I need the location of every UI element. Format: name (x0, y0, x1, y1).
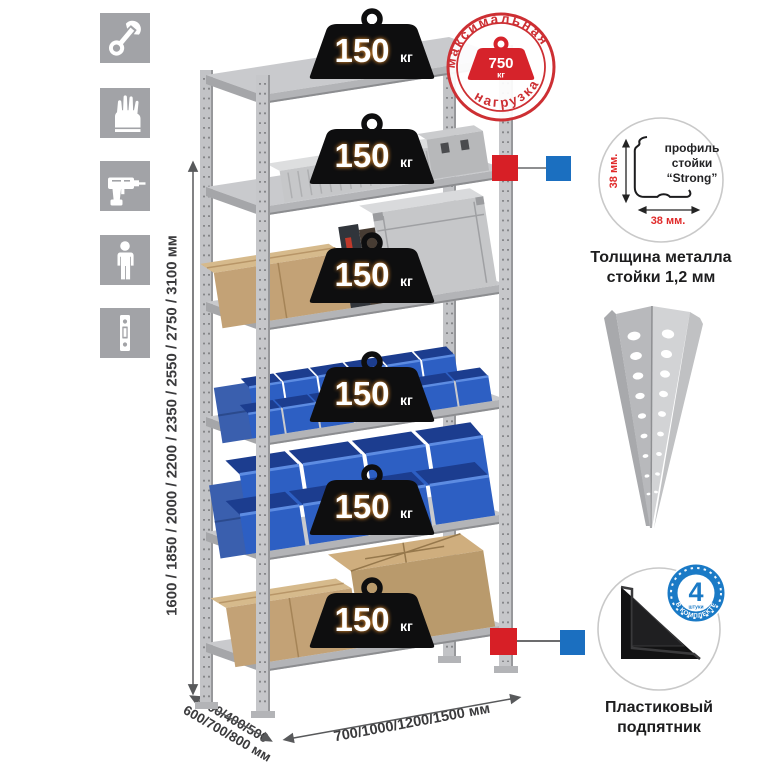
svg-text:кг: кг (400, 618, 413, 634)
svg-text:38 мм.: 38 мм. (651, 215, 686, 227)
svg-text:38 мм.: 38 мм. (608, 154, 620, 189)
blue-marker (560, 630, 585, 655)
svg-text:профиль: профиль (665, 141, 720, 155)
shelving-product-infographic: 1600 / 1850 / 2000 / 2200 / 2350 / 2550 … (0, 0, 765, 765)
plastic-foot-detail: 4 штуки В КОМПЛЕКТЕ (598, 563, 726, 690)
red-marker (492, 155, 518, 181)
weight-badge-2: 150 кг (310, 116, 434, 184)
svg-text:кг: кг (400, 154, 413, 170)
svg-text:150: 150 (334, 32, 389, 69)
angle-post-image (604, 306, 703, 528)
rack-illustration: 150 кг 150 кг 150 кг 150 кг 150 кг (0, 0, 765, 765)
svg-text:стойки: стойки (672, 156, 712, 170)
post-profile-detail: 38 мм. 38 мм. профиль стойки “Strong” (599, 118, 723, 242)
bottom-connector (490, 628, 585, 655)
blue-marker (546, 156, 571, 181)
svg-text:штуки: штуки (688, 605, 703, 611)
svg-text:кг: кг (400, 392, 413, 408)
svg-text:4: 4 (688, 577, 703, 607)
red-marker (490, 628, 517, 655)
svg-text:“Strong”: “Strong” (667, 171, 718, 185)
svg-text:кг: кг (400, 273, 413, 289)
svg-text:150: 150 (334, 375, 389, 412)
svg-text:150: 150 (334, 256, 389, 293)
quantity-badge: 4 штуки В КОМПЛЕКТЕ (666, 563, 726, 623)
weight-badge-1: 150 кг (310, 11, 434, 79)
svg-text:150: 150 (334, 601, 389, 638)
width-dimension-line (288, 698, 516, 739)
svg-text:кг: кг (400, 505, 413, 521)
svg-text:кг: кг (400, 49, 413, 65)
svg-text:150: 150 (334, 488, 389, 525)
svg-text:кг: кг (497, 70, 505, 80)
svg-text:150: 150 (334, 137, 389, 174)
top-connector (492, 155, 571, 181)
